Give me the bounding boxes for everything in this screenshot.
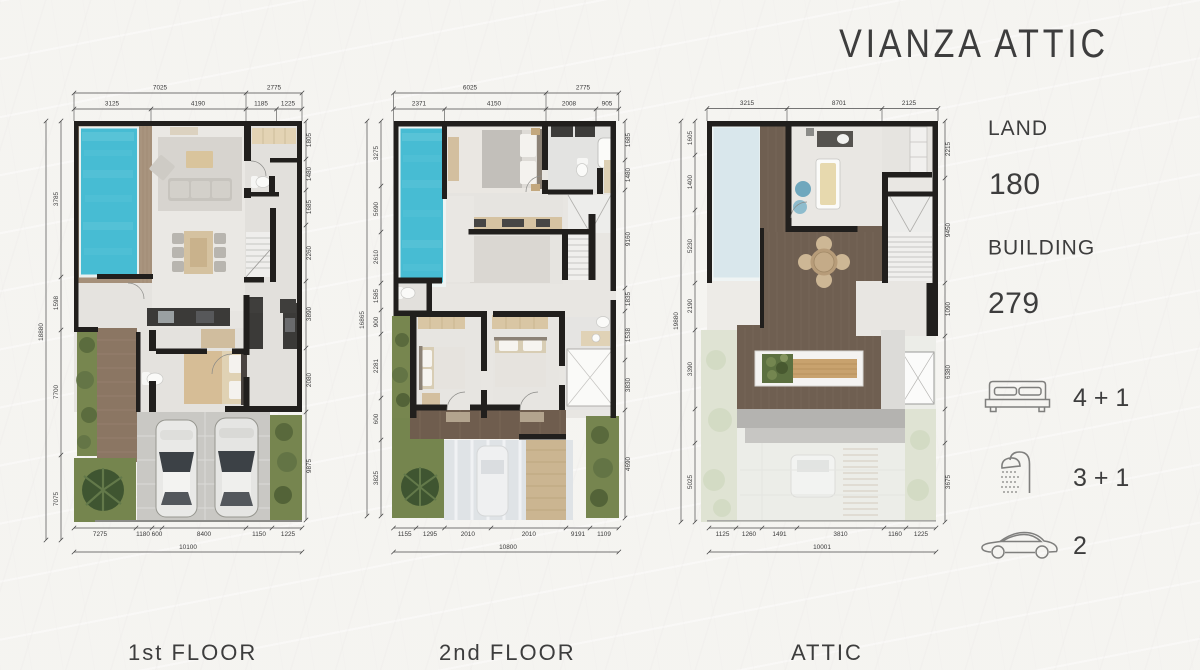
svg-text:7075: 7075 [53, 491, 60, 506]
svg-text:2125: 2125 [902, 100, 917, 107]
svg-text:1180: 1180 [136, 531, 150, 538]
svg-text:2215: 2215 [945, 141, 952, 156]
svg-text:10100: 10100 [179, 544, 197, 551]
svg-text:10001: 10001 [813, 544, 831, 551]
svg-text:2371: 2371 [412, 101, 427, 108]
svg-text:1685: 1685 [625, 132, 632, 147]
svg-text:2281: 2281 [373, 358, 380, 373]
svg-text:905: 905 [602, 101, 613, 108]
svg-text:9160: 9160 [625, 231, 632, 246]
svg-text:3 + 1: 3 + 1 [1073, 464, 1129, 492]
svg-text:3785: 3785 [53, 191, 60, 206]
svg-text:1805: 1805 [306, 132, 313, 147]
svg-text:2010: 2010 [522, 531, 537, 538]
svg-text:3825: 3825 [373, 470, 380, 485]
svg-text:2610: 2610 [373, 249, 380, 264]
svg-text:4150: 4150 [487, 101, 502, 108]
svg-text:9191: 9191 [571, 531, 586, 538]
svg-text:1480: 1480 [625, 167, 632, 182]
svg-text:5230: 5230 [687, 238, 694, 253]
svg-text:ATTIC: ATTIC [791, 640, 863, 665]
svg-text:LAND: LAND [988, 117, 1048, 140]
svg-text:1125: 1125 [716, 531, 730, 538]
svg-text:3810: 3810 [833, 531, 848, 538]
svg-text:2080: 2080 [306, 372, 313, 387]
svg-text:6025: 6025 [463, 85, 478, 92]
svg-text:600: 600 [152, 531, 163, 538]
svg-text:1260: 1260 [742, 531, 757, 538]
svg-text:1090: 1090 [945, 301, 952, 316]
svg-text:1400: 1400 [687, 174, 694, 189]
svg-text:BUILDING: BUILDING [988, 237, 1095, 260]
svg-text:3890: 3890 [306, 306, 313, 321]
svg-text:1185: 1185 [254, 101, 268, 108]
svg-text:5025: 5025 [687, 474, 694, 489]
svg-text:2775: 2775 [576, 85, 591, 92]
svg-text:9450: 9450 [945, 222, 952, 237]
svg-text:3390: 3390 [687, 361, 694, 376]
svg-text:7275: 7275 [93, 531, 108, 538]
svg-text:1491: 1491 [772, 531, 787, 538]
svg-text:1605: 1605 [687, 130, 694, 145]
svg-text:3830: 3830 [625, 377, 632, 392]
svg-text:900: 900 [373, 316, 380, 327]
svg-text:3675: 3675 [945, 474, 952, 489]
svg-text:2010: 2010 [461, 531, 476, 538]
svg-text:1160: 1160 [888, 531, 902, 538]
svg-text:4 + 1: 4 + 1 [1073, 384, 1129, 412]
svg-text:1st FLOOR: 1st FLOOR [128, 640, 257, 665]
svg-text:3125: 3125 [105, 101, 120, 108]
svg-text:3215: 3215 [740, 100, 755, 107]
svg-text:2nd FLOOR: 2nd FLOOR [439, 640, 576, 665]
svg-text:1295: 1295 [423, 531, 438, 538]
svg-text:4190: 4190 [191, 101, 206, 108]
svg-text:2775: 2775 [267, 85, 282, 92]
svg-text:1835: 1835 [625, 291, 632, 306]
svg-text:2190: 2190 [687, 298, 694, 313]
svg-text:1225: 1225 [914, 531, 929, 538]
svg-text:9875: 9875 [306, 458, 313, 473]
svg-text:1685: 1685 [306, 199, 313, 214]
svg-text:1585: 1585 [373, 288, 380, 303]
svg-text:18880: 18880 [38, 323, 45, 341]
svg-text:VIANZA ATTIC: VIANZA ATTIC [839, 22, 1109, 66]
svg-text:8400: 8400 [197, 531, 212, 538]
svg-text:16865: 16865 [359, 311, 366, 329]
svg-text:5690: 5690 [373, 201, 380, 216]
svg-text:6380: 6380 [945, 364, 952, 379]
svg-text:2260: 2260 [306, 245, 313, 260]
svg-text:7700: 7700 [53, 384, 60, 399]
svg-text:2008: 2008 [562, 101, 577, 108]
svg-text:4690: 4690 [625, 456, 632, 471]
svg-text:1538: 1538 [625, 327, 632, 342]
svg-text:600: 600 [373, 413, 380, 424]
svg-text:1598: 1598 [53, 295, 60, 310]
svg-text:1109: 1109 [597, 531, 611, 538]
svg-text:1155: 1155 [398, 531, 412, 538]
svg-text:1480: 1480 [306, 166, 313, 181]
svg-text:10800: 10800 [499, 544, 517, 551]
svg-text:180: 180 [989, 168, 1041, 201]
svg-text:279: 279 [988, 287, 1040, 320]
svg-text:8701: 8701 [832, 100, 847, 107]
svg-text:3275: 3275 [373, 145, 380, 160]
svg-text:7025: 7025 [153, 85, 168, 92]
svg-text:2: 2 [1073, 532, 1087, 560]
svg-text:1150: 1150 [252, 531, 266, 538]
svg-text:1225: 1225 [281, 101, 296, 108]
svg-text:19880: 19880 [673, 312, 680, 330]
svg-text:1225: 1225 [281, 531, 296, 538]
